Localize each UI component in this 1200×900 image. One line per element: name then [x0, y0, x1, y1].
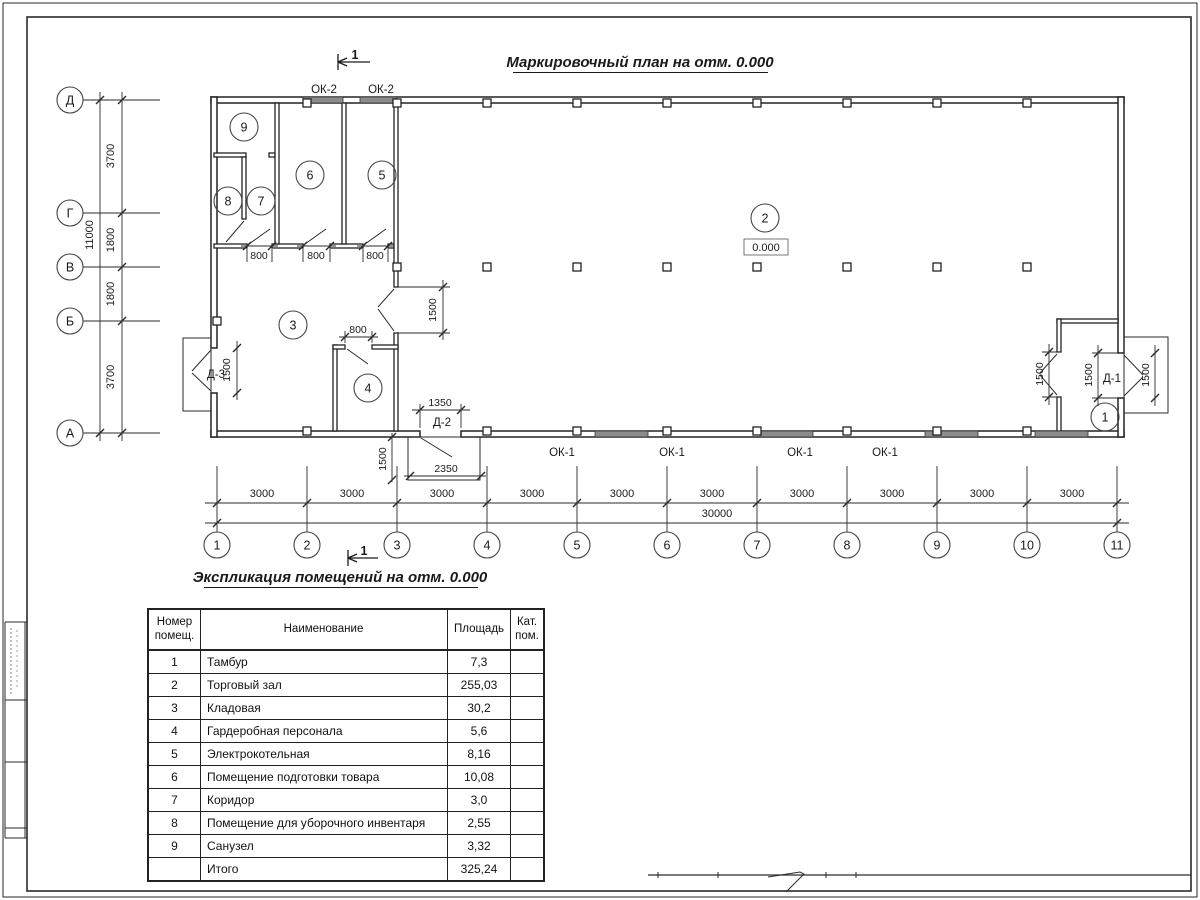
cell-num: 9	[148, 835, 201, 858]
cell-cat	[511, 720, 545, 743]
left-dim-labels: 3700 1800 1800 3700 11000	[84, 144, 117, 389]
left-stamp-cells	[5, 622, 27, 838]
cell-num: 1	[148, 650, 201, 674]
svg-text:3700: 3700	[105, 365, 117, 389]
svg-text:1500: 1500	[377, 447, 389, 471]
room-1-number: 1	[1102, 411, 1109, 425]
table-row: 2 Торговый зал 255,03	[148, 674, 544, 697]
svg-text:1800: 1800	[105, 282, 117, 306]
room-5-number: 5	[379, 169, 386, 183]
svg-text:5: 5	[574, 539, 581, 553]
svg-text:800: 800	[250, 250, 268, 262]
svg-text:Г: Г	[67, 207, 74, 221]
plan-dimensions	[233, 242, 1159, 484]
table-row: 6 Помещение подготовки товара 10,08	[148, 766, 544, 789]
svg-text:11: 11	[1111, 539, 1124, 553]
room-8-number: 8	[225, 195, 232, 209]
cell-area: 8,16	[448, 743, 511, 766]
cell-cat	[511, 697, 545, 720]
cell-cat	[511, 812, 545, 835]
header-room-area: Площадь	[448, 609, 511, 650]
room-marks	[214, 113, 1119, 431]
bottom-axis-labels: 1 2 3 4 5 6 7 8 9 10 11	[214, 539, 1124, 553]
svg-text:2: 2	[304, 539, 311, 553]
section-mark-top-label: 1	[352, 48, 359, 62]
svg-text:А: А	[66, 427, 75, 441]
svg-text:В: В	[66, 261, 74, 275]
svg-text:3000: 3000	[520, 488, 544, 500]
cell-num: 5	[148, 743, 201, 766]
svg-text:30000: 30000	[702, 508, 733, 520]
door-label-d1: Д-1	[1103, 373, 1121, 385]
cell-num	[148, 858, 201, 882]
cell-name: Торговый зал	[201, 674, 448, 697]
svg-text:3000: 3000	[610, 488, 634, 500]
svg-text:2350: 2350	[434, 463, 458, 475]
svg-text:6: 6	[664, 539, 671, 553]
room-9-number: 9	[241, 121, 248, 135]
cell-num: 7	[148, 789, 201, 812]
cell-cat	[511, 650, 545, 674]
window-ok1-4	[1035, 431, 1088, 437]
elevation-value: 0.000	[752, 242, 780, 254]
svg-text:1500: 1500	[1083, 363, 1095, 387]
cell-area: 5,6	[448, 720, 511, 743]
room-6-number: 6	[307, 169, 314, 183]
table-row: 4 Гардеробная персонала 5,6	[148, 720, 544, 743]
svg-text:10: 10	[1020, 539, 1034, 553]
left-dim-lines	[83, 92, 160, 441]
svg-text:Б: Б	[66, 315, 74, 329]
table-row: 5 Электрокотельная 8,16	[148, 743, 544, 766]
cell-num: 8	[148, 812, 201, 835]
explication-table: Номерпомещ. Наименование Площадь Кат.пом…	[147, 608, 545, 882]
cell-name: Санузел	[201, 835, 448, 858]
svg-text:1500: 1500	[1140, 363, 1152, 387]
title-block-top-edge	[648, 872, 1191, 892]
header-room-name: Наименование	[201, 609, 448, 650]
left-axis-labels: Д Г В Б А	[66, 94, 75, 441]
svg-text:1: 1	[214, 539, 221, 553]
svg-text:4: 4	[484, 539, 491, 553]
cell-name: Коридор	[201, 789, 448, 812]
svg-text:9: 9	[934, 539, 941, 553]
cell-area: 255,03	[448, 674, 511, 697]
windows	[303, 97, 1088, 437]
cell-name: Помещение для уборочного инвентаря	[201, 812, 448, 835]
table-header-row: Номерпомещ. Наименование Площадь Кат.пом…	[148, 609, 544, 650]
svg-text:7: 7	[754, 539, 761, 553]
cell-area: 2,55	[448, 812, 511, 835]
cell-name: Электрокотельная	[201, 743, 448, 766]
cell-cat	[511, 858, 545, 882]
window-label-ok2-1: ОК-2	[311, 84, 337, 96]
svg-text:3000: 3000	[790, 488, 814, 500]
cell-name: Тамбур	[201, 650, 448, 674]
svg-text:3000: 3000	[970, 488, 994, 500]
svg-text:800: 800	[366, 250, 384, 262]
svg-text:3000: 3000	[880, 488, 904, 500]
svg-text:3000: 3000	[250, 488, 274, 500]
window-label-ok1-1: ОК-1	[549, 447, 575, 459]
window-label-ok2-2: ОК-2	[368, 84, 394, 96]
svg-text:1500: 1500	[427, 298, 439, 322]
svg-text:11000: 11000	[84, 220, 96, 250]
cell-num: 4	[148, 720, 201, 743]
section-mark-bottom-label: 1	[361, 544, 368, 558]
cell-cat	[511, 743, 545, 766]
window-label-ok1-4: ОК-1	[872, 447, 898, 459]
svg-text:3000: 3000	[1060, 488, 1084, 500]
cell-cat	[511, 789, 545, 812]
svg-text:3000: 3000	[340, 488, 364, 500]
table-total-row: Итого 325,24	[148, 858, 544, 882]
svg-text:800: 800	[307, 250, 325, 262]
svg-text:800: 800	[349, 324, 367, 336]
svg-text:8: 8	[844, 539, 851, 553]
svg-text:1500: 1500	[1034, 362, 1046, 386]
room-3-number: 3	[290, 319, 297, 333]
table-row: 3 Кладовая 30,2	[148, 697, 544, 720]
table-row: 1 Тамбур 7,3	[148, 650, 544, 674]
header-room-number: Номерпомещ.	[148, 609, 201, 650]
window-label-ok1-3: ОК-1	[787, 447, 813, 459]
svg-text:1350: 1350	[428, 397, 452, 409]
cell-name: Гардеробная персонала	[201, 720, 448, 743]
svg-text:3000: 3000	[700, 488, 724, 500]
cell-name: Кладовая	[201, 697, 448, 720]
door-label-d2: Д-2	[433, 417, 451, 429]
cell-name: Помещение подготовки товара	[201, 766, 448, 789]
cell-area: 3,32	[448, 835, 511, 858]
cell-area: 7,3	[448, 650, 511, 674]
svg-text:Д: Д	[66, 94, 75, 108]
room-7-number: 7	[258, 195, 265, 209]
cell-cat	[511, 835, 545, 858]
cell-num: 3	[148, 697, 201, 720]
table-row: 9 Санузел 3,32	[148, 835, 544, 858]
window-ok2-2	[360, 97, 397, 103]
room-2-number: 2	[762, 212, 769, 226]
svg-text:3: 3	[394, 539, 401, 553]
cell-num: 6	[148, 766, 201, 789]
svg-text:1500: 1500	[221, 358, 233, 382]
cell-cat	[511, 674, 545, 697]
cell-cat	[511, 766, 545, 789]
table-row: 8 Помещение для уборочного инвентаря 2,5…	[148, 812, 544, 835]
svg-text:3700: 3700	[105, 144, 117, 168]
explication-title: Экспликация помещений на отм. 0.000	[193, 569, 488, 586]
window-label-ok1-2: ОК-1	[659, 447, 685, 459]
cell-area: 3,0	[448, 789, 511, 812]
room-4-number: 4	[365, 382, 372, 396]
drawing-sheet: Маркировочный план на отм. 0.000 Эксплик…	[0, 0, 1200, 900]
plan-dimension-labels: 800 800 800 800 1500 1500 1350 2350 1500…	[221, 250, 1152, 475]
window-ok1-2	[760, 431, 813, 437]
cell-area: 10,08	[448, 766, 511, 789]
svg-text:3000: 3000	[430, 488, 454, 500]
cell-area: 325,24	[448, 858, 511, 882]
plan-title: Маркировочный план на отм. 0.000	[506, 54, 774, 71]
table-row: 7 Коридор 3,0	[148, 789, 544, 812]
header-room-category: Кат.пом.	[511, 609, 545, 650]
cell-num: 2	[148, 674, 201, 697]
cell-name: Итого	[201, 858, 448, 882]
window-ok1-1	[595, 431, 648, 437]
svg-text:1800: 1800	[105, 228, 117, 252]
cell-area: 30,2	[448, 697, 511, 720]
